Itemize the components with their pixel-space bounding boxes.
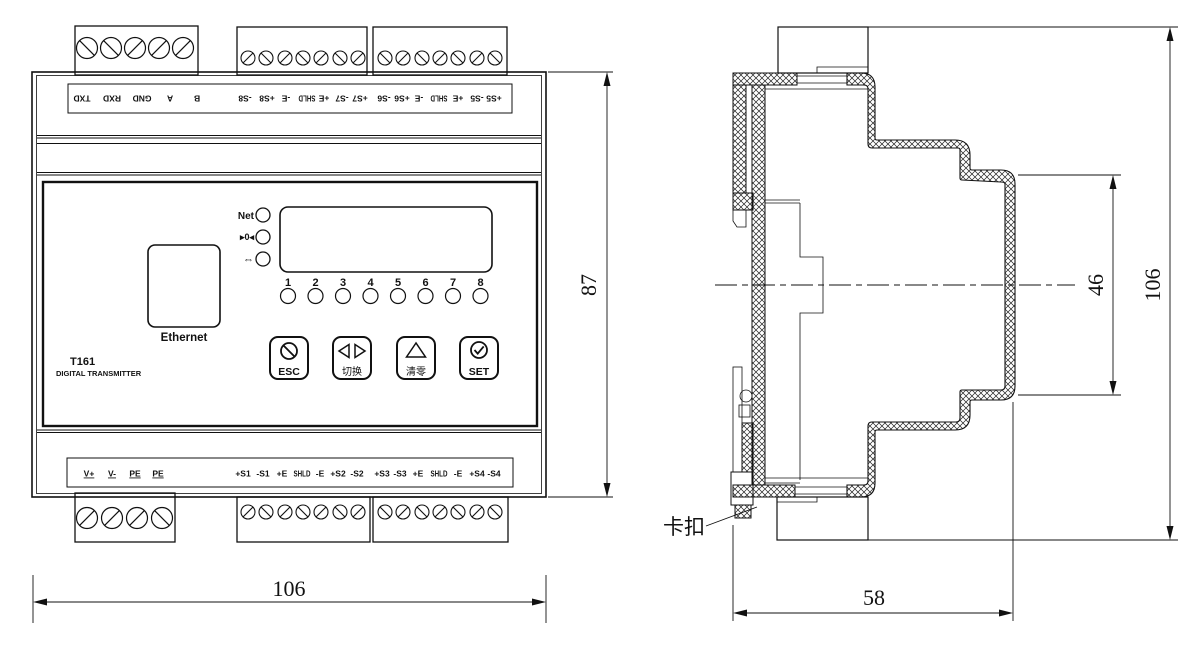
status-leds: Net ▸0◂ ⇔	[238, 208, 270, 266]
led-label-link: ⇔	[243, 254, 254, 266]
comm-led	[256, 230, 270, 244]
bottom-terminal-labels: V+ V- PE PE +S1 -S1 +E SHLD -E +S2 -S2 +…	[84, 469, 501, 479]
terminal-label: -S8	[238, 94, 252, 104]
terminal-label: SHLD	[294, 469, 311, 479]
technical-drawing: TXD RXD GND A B -S8 +S8 -E SHLD +E -S7 +…	[0, 0, 1200, 647]
arrowhead	[604, 72, 611, 86]
screw-terminals-small	[378, 51, 502, 65]
link-led	[256, 252, 270, 266]
front-panel	[43, 182, 537, 426]
arrowhead	[33, 599, 47, 606]
terminal-label: +E	[318, 94, 329, 104]
clip-callout: 卡扣	[663, 507, 757, 539]
dim-text-106-front: 106	[273, 576, 306, 601]
terminal-label: -E	[454, 469, 463, 479]
arrowhead	[733, 610, 747, 617]
channel-number: 2	[312, 277, 318, 289]
clip-label: 卡扣	[663, 516, 705, 539]
front-top-terminal-blocks	[75, 26, 507, 75]
channel-led	[418, 289, 433, 304]
terminal-label: SHLD	[431, 469, 448, 479]
top-terminal-labels: TXD RXD GND A B -S8 +S8 -E SHLD +E -S7 +…	[74, 94, 502, 104]
set-button-label: SET	[469, 366, 490, 378]
top-wall-section	[733, 73, 797, 85]
terminal-label: -S3	[393, 469, 407, 479]
channel-number: 4	[367, 277, 374, 289]
terminal-label: SHLD	[431, 94, 448, 104]
arrowhead	[1167, 27, 1174, 41]
terminal-label: -E	[281, 94, 290, 104]
channel-led	[336, 289, 351, 304]
terminal-label: A	[167, 94, 173, 104]
led-label-comm: ▸0◂	[239, 232, 255, 242]
led-label-net: Net	[238, 211, 255, 222]
switch-button: 切换	[333, 337, 371, 379]
ethernet-label: Ethernet	[161, 332, 208, 344]
model-label: T161 DIGITAL TRANSMITTER	[56, 356, 142, 378]
terminal-label: +S3	[374, 469, 390, 479]
model-number: T161	[70, 356, 95, 368]
dim-text-46: 46	[1083, 274, 1108, 296]
channel-led	[391, 289, 406, 304]
dim-front-height: 87	[548, 72, 613, 497]
front-bottom-terminal-blocks	[75, 493, 508, 542]
channel-led	[363, 289, 378, 304]
channel-led	[446, 289, 461, 304]
terminal-label: -E	[316, 469, 325, 479]
channel-number: 5	[395, 277, 401, 289]
terminal-label: +E	[452, 94, 463, 104]
screw-terminals-large	[77, 508, 173, 529]
left-right-triangles-icon	[339, 345, 365, 358]
arrowhead	[532, 599, 546, 606]
side-top-terminal-block	[778, 27, 868, 73]
dim-text-58: 58	[863, 585, 885, 610]
lcd-display	[280, 207, 492, 272]
terminal-label: +E	[277, 469, 288, 479]
switch-button-label: 切换	[342, 365, 362, 378]
dim-front-width: 106	[33, 575, 546, 623]
terminal-label: GND	[133, 94, 152, 104]
model-subtitle: DIGITAL TRANSMITTER	[56, 369, 142, 378]
terminal-label: +S2	[330, 469, 346, 479]
channel-number: 6	[422, 277, 428, 289]
terminal-label: +S5	[486, 94, 502, 104]
terminal-label: -S2	[350, 469, 364, 479]
screw-terminals-large	[77, 38, 194, 59]
terminal-label: V-	[108, 469, 116, 479]
clear-button-label: 清零	[406, 365, 426, 378]
dim-side-total-height: 106	[868, 27, 1178, 540]
screw-terminals-small	[241, 505, 365, 519]
side-view: 46 106 58 卡扣	[663, 27, 1178, 621]
din-foot-top	[733, 210, 746, 227]
set-button: SET	[460, 337, 498, 379]
bottom-wall-section	[733, 485, 795, 497]
terminal-label: SHLD	[299, 94, 316, 104]
din-hook-top	[733, 193, 753, 210]
side-bottom-terminal-block	[777, 497, 868, 540]
channel-led	[281, 289, 296, 304]
dim-text-87: 87	[576, 274, 601, 296]
terminal-label: B	[194, 94, 200, 104]
ethernet-port: Ethernet	[148, 245, 220, 344]
channel-number: 1	[285, 277, 291, 289]
clear-button: 清零	[397, 337, 435, 379]
screw-terminals-small	[378, 505, 502, 519]
terminal-label: -S1	[256, 469, 270, 479]
terminal-label: -S5	[470, 94, 484, 104]
arrowhead	[1167, 526, 1174, 540]
terminal-label: -S7	[335, 94, 349, 104]
arrowhead	[1110, 381, 1117, 395]
esc-button-label: ESC	[278, 366, 300, 378]
din-rail-flange-top	[733, 85, 746, 193]
terminal-label: PE	[152, 469, 164, 479]
channel-led	[473, 289, 488, 304]
esc-button: ESC	[270, 337, 308, 379]
channel-number: 7	[450, 277, 456, 289]
terminal-label: V+	[84, 469, 95, 479]
terminal-label: -S6	[377, 94, 391, 104]
terminal-label: PE	[129, 469, 141, 479]
cancel-icon	[281, 343, 297, 359]
terminal-label: -E	[414, 94, 423, 104]
arrowhead	[1110, 175, 1117, 189]
channel-number: 8	[477, 277, 483, 289]
net-led	[256, 208, 270, 222]
terminal-label: RXD	[103, 94, 121, 104]
terminal-label: TXD	[74, 94, 91, 104]
dim-text-106-side: 106	[1140, 269, 1165, 302]
terminal-label: +S1	[235, 469, 251, 479]
front-view: TXD RXD GND A B -S8 +S8 -E SHLD +E -S7 +…	[32, 26, 613, 623]
terminal-label: +S8	[259, 94, 275, 104]
terminal-label: +S7	[352, 94, 368, 104]
check-circle-icon	[471, 342, 487, 358]
terminal-label: +S4	[469, 469, 485, 479]
arrowhead	[604, 483, 611, 497]
screw-terminals-small	[241, 51, 365, 65]
up-triangle-icon	[407, 343, 426, 357]
channel-led	[308, 289, 323, 304]
terminal-label: +S6	[394, 94, 410, 104]
arrowhead	[999, 610, 1013, 617]
terminal-label: +E	[413, 469, 424, 479]
terminal-label: -S4	[487, 469, 501, 479]
channel-indicators: 1 2 3 4 5 6 7 8	[281, 277, 489, 304]
channel-number: 3	[340, 277, 346, 289]
